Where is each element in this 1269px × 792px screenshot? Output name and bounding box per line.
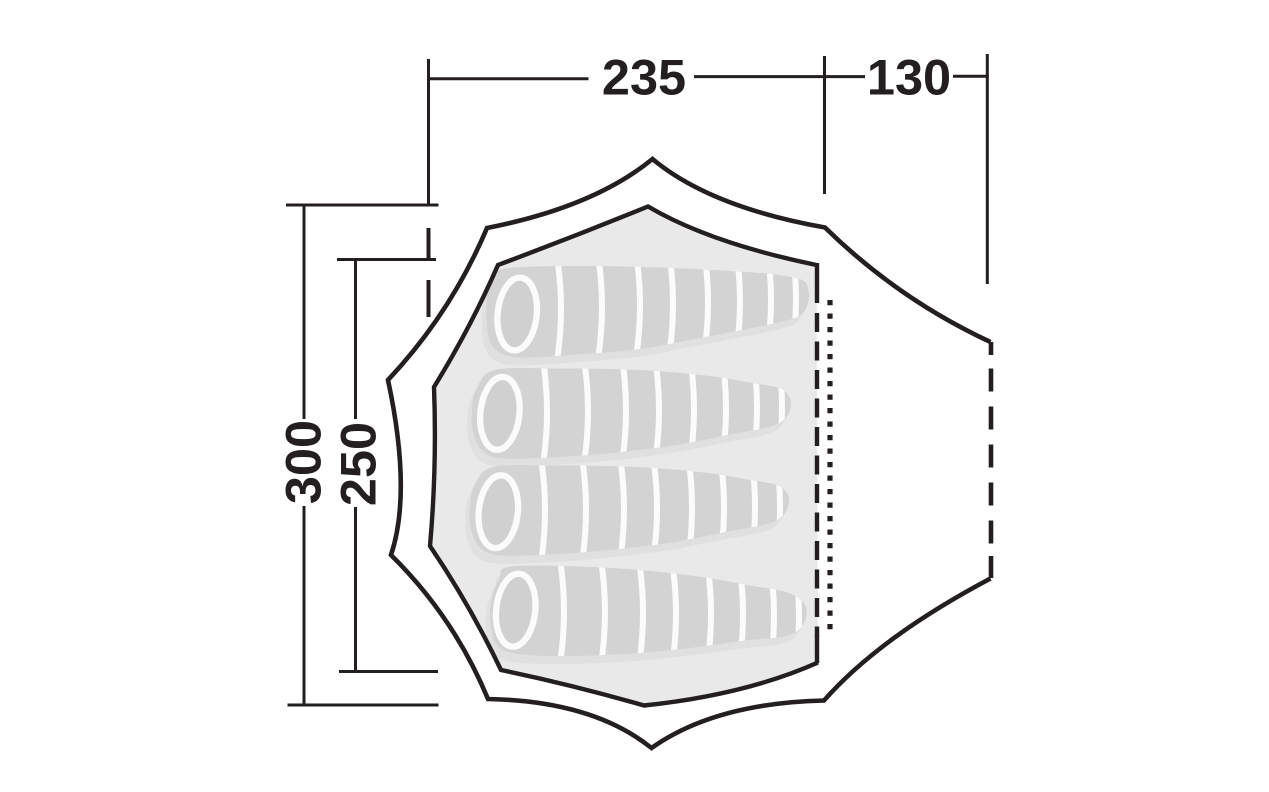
svg-text:250: 250 (329, 422, 386, 506)
svg-text:300: 300 (274, 420, 331, 504)
svg-text:235: 235 (602, 48, 686, 105)
svg-text:130: 130 (867, 48, 951, 105)
